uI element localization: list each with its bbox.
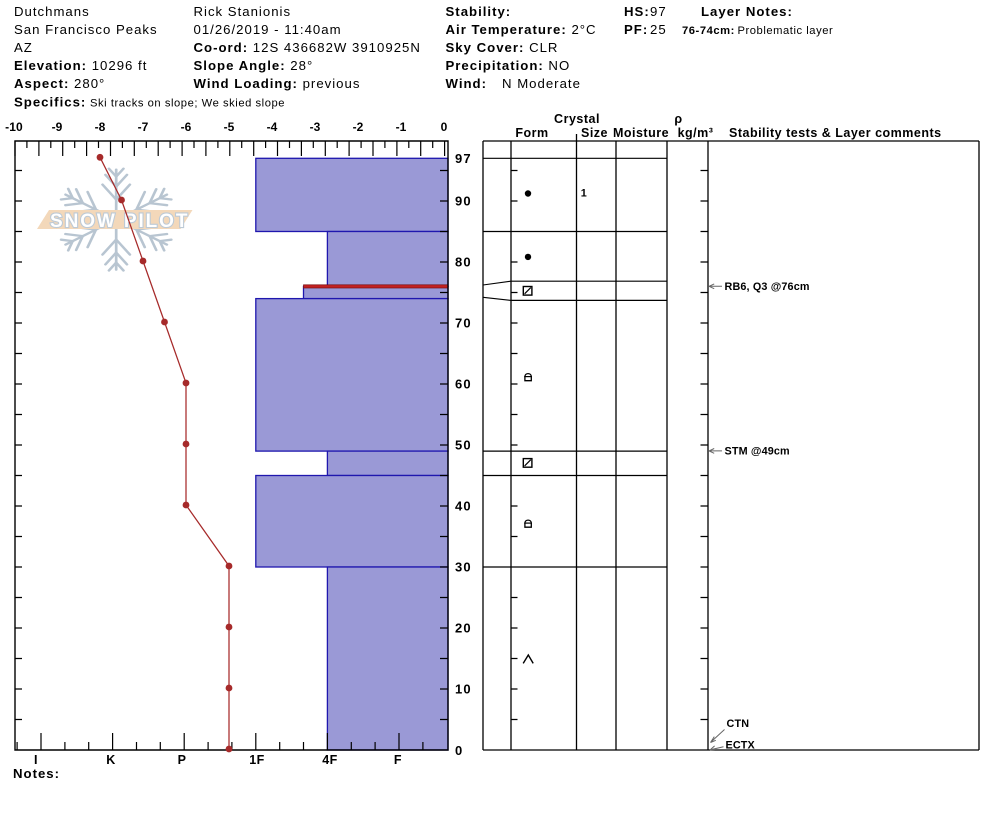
svg-text:SNOW PILOT: SNOW PILOT xyxy=(50,211,189,232)
svg-text:Air Temperature: 2°C: Air Temperature: 2°C xyxy=(446,22,597,37)
svg-text:01/26/2019 - 11:40am: 01/26/2019 - 11:40am xyxy=(194,22,342,37)
svg-text:Size: Size xyxy=(581,126,608,140)
svg-text:30: 30 xyxy=(455,560,472,575)
svg-text:-6: -6 xyxy=(181,120,192,134)
svg-text:ECTX: ECTX xyxy=(726,739,756,751)
svg-text:Specifics:: Specifics: xyxy=(14,94,86,109)
svg-text:Crystal: Crystal xyxy=(554,112,600,126)
svg-text:HS:: HS: xyxy=(624,4,650,19)
svg-text:Rick Stanionis: Rick Stanionis xyxy=(194,4,292,19)
svg-text:-2: -2 xyxy=(353,120,364,134)
svg-text:60: 60 xyxy=(455,377,472,392)
svg-text:PF:: PF: xyxy=(624,22,648,37)
svg-text:Slope Angle: 28°: Slope Angle: 28° xyxy=(194,58,314,73)
svg-text:Problematic layer: Problematic layer xyxy=(738,25,834,37)
svg-text:97: 97 xyxy=(455,151,472,166)
svg-text:-10: -10 xyxy=(5,120,23,134)
svg-text:I: I xyxy=(34,753,38,767)
svg-text:AZ: AZ xyxy=(14,40,33,55)
svg-text:STM @49cm: STM @49cm xyxy=(725,446,790,458)
svg-text:1F: 1F xyxy=(249,753,265,767)
svg-text:90: 90 xyxy=(455,194,472,209)
svg-text:Sky Cover: CLR: Sky Cover: CLR xyxy=(446,40,559,55)
svg-text:Elevation: 10296 ft: Elevation: 10296 ft xyxy=(14,58,147,73)
svg-text:Wind:: Wind: xyxy=(446,76,488,91)
svg-text:Notes:: Notes: xyxy=(13,766,60,781)
svg-text:Aspect: 280°: Aspect: 280° xyxy=(14,76,105,91)
svg-text:80: 80 xyxy=(455,255,472,270)
svg-text:-3: -3 xyxy=(310,120,321,134)
svg-text:San Francisco Peaks: San Francisco Peaks xyxy=(14,22,158,37)
svg-text:-5: -5 xyxy=(224,120,235,134)
svg-text:-8: -8 xyxy=(95,120,106,134)
svg-text:25: 25 xyxy=(650,22,667,37)
svg-text:Layer Notes:: Layer Notes: xyxy=(701,4,793,19)
svg-text:10: 10 xyxy=(455,682,472,697)
svg-text:kg/m³: kg/m³ xyxy=(678,126,714,140)
svg-text:K: K xyxy=(106,753,116,767)
svg-text:0: 0 xyxy=(455,743,463,758)
svg-text:CTN: CTN xyxy=(727,718,750,730)
svg-text:Ski tracks on slope; We skied: Ski tracks on slope; We skied slope xyxy=(90,97,285,109)
svg-text:Co-ord: 12S 436682W 3910925N: Co-ord: 12S 436682W 3910925N xyxy=(194,40,421,55)
svg-text:-4: -4 xyxy=(267,120,278,134)
svg-text:50: 50 xyxy=(455,438,472,453)
svg-text:97: 97 xyxy=(650,4,667,19)
svg-text:Moisture: Moisture xyxy=(613,126,669,140)
svg-text:Dutchmans: Dutchmans xyxy=(14,4,90,19)
svg-text:Stability tests & Layer commen: Stability tests & Layer comments xyxy=(729,126,942,140)
svg-text:-1: -1 xyxy=(396,120,407,134)
svg-text:Wind Loading: previous: Wind Loading: previous xyxy=(194,76,361,91)
svg-text:40: 40 xyxy=(455,499,472,514)
svg-text:-7: -7 xyxy=(138,120,149,134)
svg-text:Precipitation: NO: Precipitation: NO xyxy=(446,58,571,73)
svg-text:4F: 4F xyxy=(322,753,338,767)
svg-text:ρ: ρ xyxy=(674,112,682,126)
svg-text:Stability:: Stability: xyxy=(446,4,512,19)
svg-text:-9: -9 xyxy=(52,120,63,134)
svg-text:0: 0 xyxy=(441,120,448,134)
svg-text:RB6, Q3 @76cm: RB6, Q3 @76cm xyxy=(725,281,810,293)
svg-text:N Moderate: N Moderate xyxy=(502,76,581,91)
svg-text:70: 70 xyxy=(455,316,472,331)
svg-text:1: 1 xyxy=(581,188,587,200)
svg-text:Form: Form xyxy=(515,126,548,140)
svg-text:P: P xyxy=(178,753,187,767)
svg-text:76-74cm:: 76-74cm: xyxy=(682,25,735,37)
svg-text:F: F xyxy=(394,753,402,767)
svg-text:20: 20 xyxy=(455,621,472,636)
